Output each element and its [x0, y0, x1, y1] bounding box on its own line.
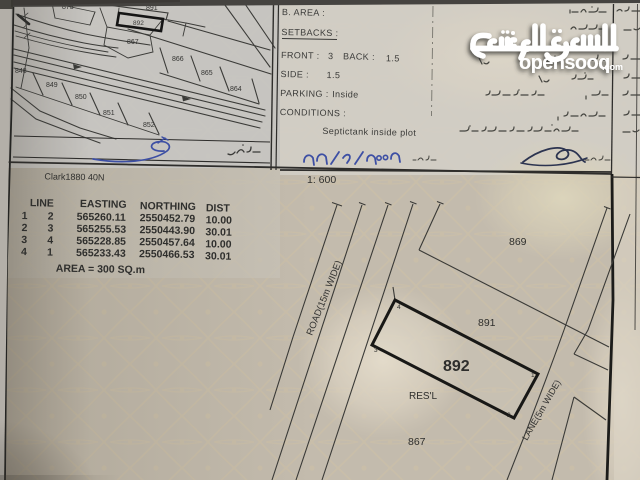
svg-text:867: 867	[127, 39, 139, 46]
svg-text:2: 2	[21, 222, 27, 234]
svg-text:CONDITIONS :: CONDITIONS :	[280, 107, 347, 118]
svg-text:3: 3	[374, 347, 378, 354]
svg-text:2550466.53: 2550466.53	[139, 248, 195, 261]
svg-text:2: 2	[48, 210, 54, 222]
svg-text:869: 869	[509, 236, 527, 248]
svg-text:850: 850	[75, 94, 87, 101]
svg-text:891: 891	[478, 317, 496, 329]
svg-text:opensooq: opensooq	[519, 52, 610, 74]
svg-text:4: 4	[21, 246, 27, 258]
svg-text:Clark1880 40N: Clark1880 40N	[44, 171, 104, 182]
svg-text:FRONT :: FRONT :	[281, 50, 320, 61]
svg-text:852: 852	[143, 122, 155, 129]
svg-text:.com: .com	[602, 62, 623, 72]
svg-text:2: 2	[507, 412, 511, 419]
svg-text:3: 3	[47, 222, 53, 234]
svg-text:1: 1	[22, 210, 28, 222]
svg-text:3: 3	[328, 51, 334, 61]
svg-text:AREA = 300 SQ.m: AREA = 300 SQ.m	[56, 263, 145, 277]
svg-text:LINE: LINE	[30, 197, 54, 209]
svg-text:3: 3	[21, 234, 27, 246]
svg-text:864: 864	[230, 86, 242, 93]
svg-text:Septictank inside plot: Septictank inside plot	[322, 126, 416, 138]
svg-text:Inside: Inside	[332, 89, 359, 100]
svg-text:892: 892	[133, 20, 144, 27]
svg-text:866: 866	[172, 56, 184, 63]
svg-text:851: 851	[103, 110, 115, 117]
svg-text:565255.53: 565255.53	[76, 223, 126, 236]
svg-text:1.5: 1.5	[386, 53, 400, 63]
svg-text:867: 867	[408, 436, 426, 448]
svg-text:2550457.64: 2550457.64	[139, 236, 195, 249]
svg-text:565260.11: 565260.11	[77, 211, 126, 224]
svg-text:30.01: 30.01	[205, 226, 232, 238]
svg-text:PARKING :: PARKING :	[280, 88, 329, 99]
svg-text:SIDE :: SIDE :	[281, 69, 310, 80]
svg-text:1: 1	[47, 246, 53, 258]
svg-text:B. AREA :: B. AREA :	[282, 7, 325, 18]
svg-text:892: 892	[443, 358, 470, 375]
svg-text:565233.43: 565233.43	[76, 247, 126, 260]
svg-text:2550443.90: 2550443.90	[139, 224, 195, 237]
svg-text:10.00: 10.00	[206, 214, 233, 226]
svg-text:DIST: DIST	[206, 202, 231, 214]
svg-text:RES'L: RES'L	[409, 391, 437, 402]
svg-text:1: 600: 1: 600	[307, 174, 336, 186]
svg-text:4: 4	[397, 304, 401, 311]
svg-text:EASTING: EASTING	[80, 198, 127, 211]
svg-text:4: 4	[47, 234, 53, 246]
svg-text:849: 849	[46, 82, 58, 89]
svg-text:865: 865	[201, 70, 213, 77]
svg-text:SETBACKS :: SETBACKS :	[281, 27, 338, 38]
svg-text:848: 848	[15, 68, 27, 75]
svg-text:NORTHING: NORTHING	[140, 200, 196, 213]
svg-text:565228.85: 565228.85	[76, 235, 126, 248]
svg-text:2550452.79: 2550452.79	[140, 212, 196, 225]
svg-text:30.01: 30.01	[205, 250, 232, 262]
svg-text:1.5: 1.5	[327, 70, 341, 80]
svg-text:10.00: 10.00	[205, 238, 232, 250]
svg-text:1: 1	[531, 372, 535, 379]
svg-text:BACK :: BACK :	[343, 51, 375, 62]
